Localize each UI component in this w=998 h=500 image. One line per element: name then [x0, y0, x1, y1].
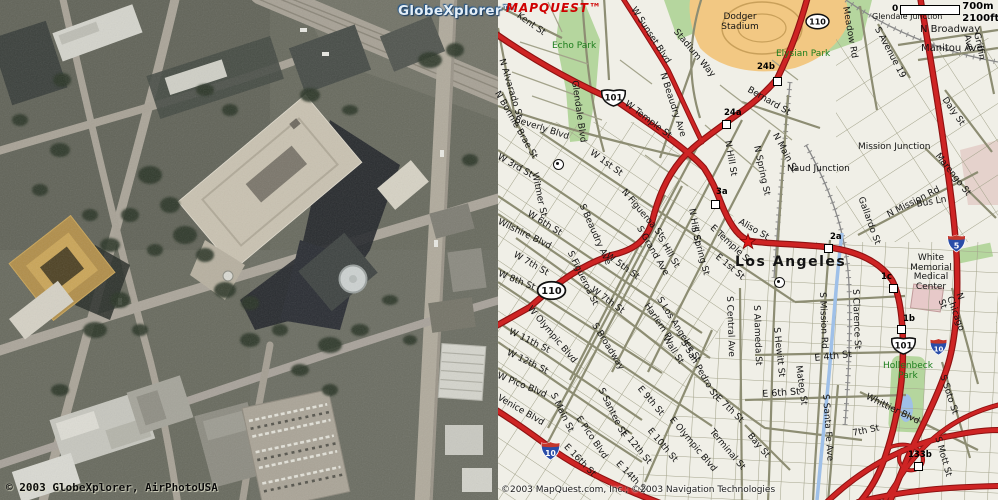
- scale-bar-graphic: [900, 5, 960, 15]
- map-scale-bar: 0 700m 2100ft: [892, 1, 998, 24]
- mapquest-logo: MAPQUEST™: [506, 1, 602, 15]
- aerial-photo-art: [0, 0, 498, 500]
- scale-metric-label: 700m: [962, 1, 998, 13]
- map-copyright: ©2003 MapQuest.com, Inc.; ©2003 Navigati…: [501, 485, 775, 495]
- mapquest-aerial-map-view: Kent StEcho ParkN Alvarado StGlendale Bl…: [0, 0, 998, 500]
- scale-zero-label: 0: [892, 4, 898, 14]
- street-map-panel[interactable]: [498, 0, 998, 500]
- aerial-copyright: © 2003 GlobeXplorer, AirPhotoUSA: [6, 481, 218, 494]
- aerial-photo-grain: [0, 0, 498, 500]
- map-canvas: [498, 0, 998, 500]
- globexplorer-watermark: GlobeXplorer™: [398, 3, 516, 19]
- scale-imperial-label: 2100ft: [962, 13, 998, 25]
- aerial-photo-panel[interactable]: [0, 0, 498, 500]
